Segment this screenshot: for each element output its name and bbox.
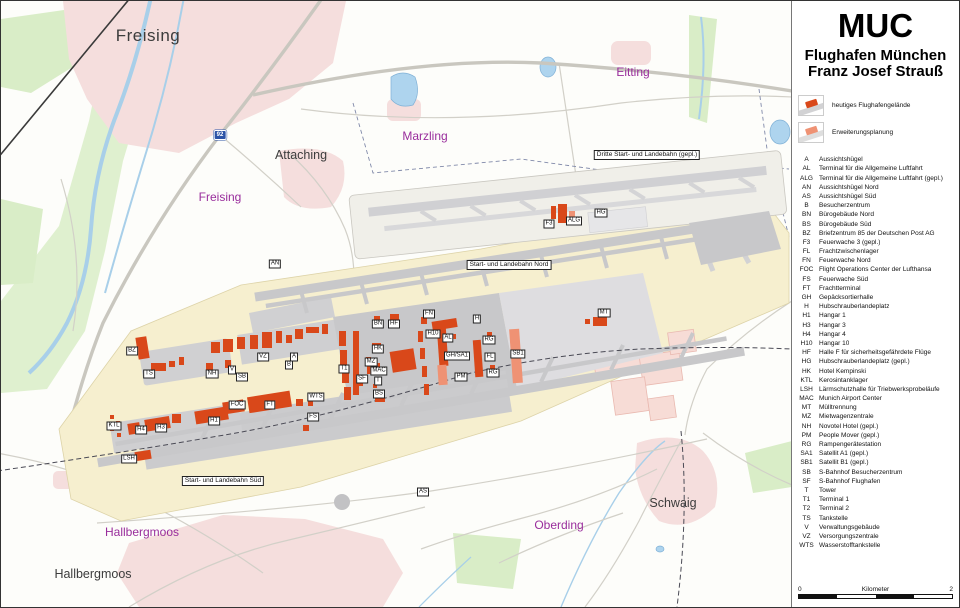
- legend-item-label: heutiges Flughafengelände: [832, 102, 910, 109]
- abbreviation-code: MZ: [798, 413, 815, 420]
- runway-label: Start- und Landebahn Nord: [467, 260, 552, 270]
- facility-code-mz: MZ: [365, 358, 378, 367]
- facility-code-fs: FS: [307, 413, 319, 422]
- abbreviation-row: SFS-Bahnhof Flughafen: [798, 478, 953, 487]
- scale-bar-graphic: [798, 594, 953, 599]
- abbreviation-code: B: [798, 202, 815, 209]
- facility-code-wts: WTS: [307, 393, 324, 402]
- abbreviation-label: Hangar 10: [819, 340, 849, 347]
- facility-code-sf: SF: [356, 375, 368, 384]
- abbreviation-code: AS: [798, 193, 815, 200]
- abbreviation-code: FOC: [798, 266, 815, 273]
- abbreviation-code: AN: [798, 184, 815, 191]
- abbreviation-code: PM: [798, 432, 815, 439]
- abbreviation-row: FLFrachtzwischenlager: [798, 248, 953, 257]
- abbreviation-label: Lärmschutzhalle für Triebwerksprobeläufe: [819, 386, 940, 393]
- facility-code-nh: NH: [206, 370, 219, 379]
- place-label-marzling: Marzling: [402, 129, 447, 143]
- abbreviation-code: ALG: [798, 175, 815, 182]
- facility-code-alg: ALG: [566, 217, 582, 226]
- abbreviation-code: SB1: [798, 459, 815, 466]
- abbreviation-label: Terminal für die Allgemeine Luftfahrt (g…: [819, 175, 943, 182]
- abbreviation-code: V: [798, 524, 815, 531]
- abbreviation-row: VVerwaltungsgebäude: [798, 524, 953, 533]
- facility-code-bs: BS: [373, 390, 385, 399]
- abbreviation-label: S-Bahnhof Besucherzentrum: [819, 469, 902, 476]
- abbreviation-code: H4: [798, 331, 815, 338]
- abbreviation-label: Tower: [819, 487, 836, 494]
- abbreviation-label: Frachtzwischenlager: [819, 248, 879, 255]
- abbreviation-code: A: [798, 156, 815, 163]
- abbreviation-label: Terminal 1: [819, 496, 849, 503]
- legend-panel: MUC Flughafen München Franz Josef Strauß…: [792, 1, 959, 607]
- abbreviation-code: RG: [798, 441, 815, 448]
- abbreviation-row: WTSWasserstofftankstelle: [798, 542, 953, 551]
- place-label-oberding: Oberding: [534, 518, 583, 532]
- abbreviation-row: ASAussichtshügel Süd: [798, 193, 953, 202]
- abbreviation-code: T1: [798, 496, 815, 503]
- facility-code-hk: HK: [372, 345, 384, 354]
- abbreviation-row: SA1Satellit A1 (gepl.): [798, 450, 953, 459]
- facility-code-f3: F3: [543, 220, 554, 229]
- facility-code-mac: MAC: [370, 367, 387, 376]
- abbreviation-row: HHubschrauberlandeplatz: [798, 303, 953, 312]
- facility-code-bz: BZ: [126, 347, 138, 356]
- page: FreisingAttachingFreisingMarzlingEitting…: [0, 0, 960, 608]
- facility-code-sb: SB: [236, 373, 248, 382]
- abbreviation-label: Munich Airport Center: [819, 395, 882, 402]
- facility-code-ghsa1: GH/SA1: [444, 352, 470, 361]
- place-label-hallbergmoos: Hallbergmoos: [105, 525, 179, 539]
- facility-code-vz: VZ: [257, 353, 269, 362]
- abbreviation-code: HK: [798, 368, 815, 375]
- facility-code-ts: TS: [143, 370, 155, 379]
- abbreviation-row: FNFeuerwache Nord: [798, 257, 953, 266]
- abbreviation-row: VZVersorgungszentrale: [798, 533, 953, 542]
- airport-code-title: MUC: [798, 9, 953, 44]
- abbreviation-code: FS: [798, 276, 815, 283]
- abbreviation-label: Briefzentrum 85 der Deutschen Post AG: [819, 230, 935, 237]
- abbreviation-label: Novotel Hotel (gepl.): [819, 423, 878, 430]
- subtitle-line-1: Flughafen München: [798, 48, 953, 65]
- abbreviation-label: Satellit A1 (gepl.): [819, 450, 868, 457]
- abbreviation-row: BZBriefzentrum 85 der Deutschen Post AG: [798, 230, 953, 239]
- abbreviation-code: VZ: [798, 533, 815, 540]
- abbreviation-label: Bürogebäude Nord: [819, 211, 874, 218]
- scale-max: 2: [949, 586, 953, 593]
- abbreviation-label: S-Bahnhof Flughafen: [819, 478, 880, 485]
- abbreviation-row: ALTerminal für die Allgemeine Luftfahrt: [798, 165, 953, 174]
- abbreviation-label: Satellit B1 (gepl.): [819, 459, 869, 466]
- scale-unit: Kilometer: [862, 586, 889, 593]
- abbreviation-row: TSTankstelle: [798, 515, 953, 524]
- abbreviation-label: Terminal für die Allgemeine Luftfahrt: [819, 165, 923, 172]
- abbreviation-label: Feuerwache 3 (gepl.): [819, 239, 880, 246]
- facility-code-b: B: [285, 361, 293, 370]
- abbreviation-label: Rampengerätestation: [819, 441, 881, 448]
- legend-item-current: heutiges Flughafengelände: [798, 95, 953, 116]
- facility-code-ft: FT: [264, 401, 275, 410]
- abbreviation-code: H3: [798, 322, 815, 329]
- abbreviation-label: People Mover (gepl.): [819, 432, 879, 439]
- abbreviation-label: Mietwagenzentrale: [819, 413, 874, 420]
- place-label-freising: Freising: [199, 190, 242, 204]
- abbreviation-row: F3Feuerwache 3 (gepl.): [798, 239, 953, 248]
- abbreviation-row: BBesucherzentrum: [798, 202, 953, 211]
- facility-code-hf: HF: [388, 320, 400, 329]
- abbreviation-row: KTLKerosintanklager: [798, 377, 953, 386]
- abbreviation-label: Versorgungszentrale: [819, 533, 879, 540]
- facility-code-t: T: [374, 377, 382, 386]
- abbreviation-code: H10: [798, 340, 815, 347]
- abbreviation-label: Gepäcksortierhalle: [819, 294, 873, 301]
- abbreviation-row: MTMülltrennung: [798, 404, 953, 413]
- abbreviation-label: Aussichtshügel Süd: [819, 193, 876, 200]
- abbreviation-code: HG: [798, 358, 815, 365]
- abbreviation-list: AAussichtshügelALTerminal für die Allgem…: [798, 156, 953, 551]
- place-label-hallbergmoos: Hallbergmoos: [54, 567, 131, 581]
- facility-code-pm: PM: [455, 373, 468, 382]
- place-label-freising: Freising: [116, 26, 180, 46]
- abbreviation-code: LSH: [798, 386, 815, 393]
- facility-code-h: H: [473, 315, 481, 324]
- facility-code-h3: H3: [155, 424, 167, 433]
- runway-label: Start- und Landebahn Süd: [182, 476, 264, 486]
- abbreviation-code: BZ: [798, 230, 815, 237]
- abbreviation-code: NH: [798, 423, 815, 430]
- abbreviation-label: Mülltrennung: [819, 404, 857, 411]
- abbreviation-label: Hotel Kempinski: [819, 368, 866, 375]
- abbreviation-label: Flight Operations Center der Lufthansa: [819, 266, 931, 273]
- abbreviation-row: FOCFlight Operations Center der Lufthans…: [798, 266, 953, 275]
- abbreviation-row: TTower: [798, 487, 953, 496]
- abbreviation-code: T: [798, 487, 815, 494]
- abbreviation-row: SB1Satellit B1 (gepl.): [798, 459, 953, 468]
- abbreviation-code: SF: [798, 478, 815, 485]
- abbreviation-row: SBS-Bahnhof Besucherzentrum: [798, 469, 953, 478]
- abbreviation-label: Kerosintanklager: [819, 377, 868, 384]
- scale-min: 0: [798, 586, 802, 593]
- facility-code-h4: H4: [135, 426, 147, 435]
- abbreviation-row: BNBürogebäude Nord: [798, 211, 953, 220]
- facility-code-a: A: [290, 353, 298, 362]
- abbreviation-code: HF: [798, 349, 815, 356]
- legend-item-label: Erweiterungsplanung: [832, 129, 893, 136]
- abbreviation-row: H3Hangar 3: [798, 322, 953, 331]
- legend-item-planned: Erweiterungsplanung: [798, 122, 953, 143]
- map-label-layer: FreisingAttachingFreisingMarzlingEitting…: [1, 1, 791, 607]
- abbreviation-label: Tankstelle: [819, 515, 848, 522]
- abbreviation-row: AAussichtshügel: [798, 156, 953, 165]
- abbreviation-code: H1: [798, 312, 815, 319]
- abbreviation-row: NHNovotel Hotel (gepl.): [798, 423, 953, 432]
- abbreviation-label: Bürogebäude Süd: [819, 221, 871, 228]
- abbreviation-code: AL: [798, 165, 815, 172]
- facility-code-t1: T1: [338, 365, 349, 374]
- facility-code-ktl: KTL: [106, 422, 121, 431]
- airport-map: FreisingAttachingFreisingMarzlingEitting…: [1, 1, 792, 607]
- abbreviation-code: T2: [798, 505, 815, 512]
- abbreviation-code: SA1: [798, 450, 815, 457]
- facility-code-rg: RG: [487, 369, 500, 378]
- abbreviation-label: Aussichtshügel: [819, 156, 863, 163]
- abbreviation-label: Halle F für sicherheitsgefährdete Flüge: [819, 349, 931, 356]
- facility-code-rg: RG: [483, 336, 496, 345]
- abbreviation-code: KTL: [798, 377, 815, 384]
- abbreviation-label: Hangar 4: [819, 331, 846, 338]
- abbreviation-code: FL: [798, 248, 815, 255]
- abbreviation-row: MACMunich Airport Center: [798, 395, 953, 404]
- facility-code-fn: FN: [423, 310, 435, 319]
- facility-code-as: AS: [417, 488, 429, 497]
- abbreviation-label: Besucherzentrum: [819, 202, 870, 209]
- place-label-eitting: Eitting: [616, 65, 649, 79]
- abbreviation-code: WTS: [798, 542, 815, 549]
- abbreviation-code: BN: [798, 211, 815, 218]
- facility-code-h1: H1: [208, 417, 220, 426]
- abbreviation-row: ALGTerminal für die Allgemeine Luftfahrt…: [798, 175, 953, 184]
- place-label-attaching: Attaching: [275, 148, 327, 162]
- facility-code-mt: MT: [598, 309, 611, 318]
- facility-code-al: AL: [442, 334, 453, 343]
- facility-code-lsh: LSH: [121, 455, 137, 464]
- abbreviation-code: FT: [798, 285, 815, 292]
- facility-code-v: V: [228, 366, 236, 375]
- facility-code-foc: FOC: [229, 401, 246, 410]
- abbreviation-row: H4Hangar 4: [798, 331, 953, 340]
- abbreviation-code: GH: [798, 294, 815, 301]
- facility-code-sb1: SB1: [510, 350, 525, 359]
- abbreviation-row: BSBürogebäude Süd: [798, 221, 953, 230]
- motorway-shield-92: 92: [214, 130, 227, 140]
- abbreviation-label: Verwaltungsgebäude: [819, 524, 880, 531]
- runway-label: Dritte Start- und Landebahn (gepl.): [594, 150, 700, 160]
- abbreviation-label: Hangar 3: [819, 322, 846, 329]
- subtitle-line-2: Franz Josef Strauß: [798, 64, 953, 81]
- abbreviation-code: BS: [798, 221, 815, 228]
- place-label-schwaig: Schwaig: [649, 496, 696, 510]
- abbreviation-row: PMPeople Mover (gepl.): [798, 432, 953, 441]
- abbreviation-row: ANAussichtshügel Nord: [798, 184, 953, 193]
- abbreviation-row: LSHLärmschutzhalle für Triebwerksprobelä…: [798, 386, 953, 395]
- abbreviation-code: SB: [798, 469, 815, 476]
- abbreviation-row: T2Terminal 2: [798, 505, 953, 514]
- abbreviation-label: Aussichtshügel Nord: [819, 184, 879, 191]
- facility-code-an: AN: [269, 260, 281, 269]
- area-legend: heutiges FlughafengeländeErweiterungspla…: [798, 95, 953, 143]
- abbreviation-label: Terminal 2: [819, 505, 849, 512]
- facility-code-h10: H10: [425, 330, 440, 339]
- abbreviation-code: MAC: [798, 395, 815, 402]
- abbreviation-code: TS: [798, 515, 815, 522]
- abbreviation-row: HFHalle F für sicherheitsgefährdete Flüg…: [798, 349, 953, 358]
- abbreviation-code: MT: [798, 404, 815, 411]
- abbreviation-label: Frachtterminal: [819, 285, 861, 292]
- abbreviation-label: Hangar 1: [819, 312, 846, 319]
- abbreviation-label: Hubschrauberlandeplatz (gepl.): [819, 358, 910, 365]
- abbreviation-row: MZMietwagenzentrale: [798, 413, 953, 422]
- facility-code-hg: HG: [595, 209, 608, 218]
- abbreviation-row: RGRampengerätestation: [798, 441, 953, 450]
- abbreviation-label: Feuerwache Süd: [819, 276, 868, 283]
- abbreviation-row: FTFrachtterminal: [798, 285, 953, 294]
- abbreviation-code: FN: [798, 257, 815, 264]
- abbreviation-row: H10Hangar 10: [798, 340, 953, 349]
- abbreviation-code: H: [798, 303, 815, 310]
- abbreviation-label: Wasserstofftankstelle: [819, 542, 880, 549]
- abbreviation-label: Feuerwache Nord: [819, 257, 871, 264]
- airport-name-subtitle: Flughafen München Franz Josef Strauß: [798, 48, 953, 82]
- facility-code-bn: BN: [372, 320, 384, 329]
- legend-swatch-current: [798, 95, 824, 116]
- abbreviation-row: T1Terminal 1: [798, 496, 953, 505]
- abbreviation-code: F3: [798, 239, 815, 246]
- legend-swatch-planned: [798, 122, 824, 143]
- facility-code-fl: FL: [484, 353, 495, 362]
- abbreviation-row: HGHubschrauberlandeplatz (gepl.): [798, 358, 953, 367]
- abbreviation-row: GHGepäcksortierhalle: [798, 294, 953, 303]
- abbreviation-label: Hubschrauberlandeplatz: [819, 303, 889, 310]
- scale-bar: 0 Kilometer 2: [798, 586, 953, 599]
- abbreviation-row: HKHotel Kempinski: [798, 368, 953, 377]
- abbreviation-row: FSFeuerwache Süd: [798, 276, 953, 285]
- abbreviation-row: H1Hangar 1: [798, 312, 953, 321]
